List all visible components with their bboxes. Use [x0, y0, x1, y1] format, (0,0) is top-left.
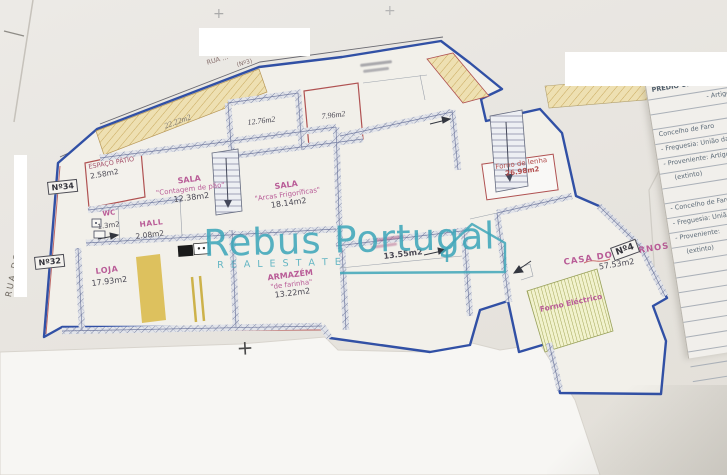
- watermark-brand: Rebus Portugal: [203, 214, 496, 265]
- photo-shadow: [547, 385, 727, 475]
- room-name: LOJA: [95, 264, 119, 276]
- redaction-patch-left: [14, 155, 27, 297]
- survey-cross: +: [384, 3, 396, 19]
- bottom-paper-sheet: [0, 337, 600, 475]
- room-label-wc: WC: [102, 208, 116, 218]
- redaction-patch-top: [199, 28, 310, 56]
- room-name: WC: [102, 208, 116, 218]
- scanned-floorplan-photo: ESPAÇO PÁTIO 2.58m2 SALA "Contagem de pã…: [0, 0, 727, 475]
- survey-cross: +: [236, 335, 254, 360]
- redaction-patch-topright: [565, 52, 727, 86]
- survey-cross: +: [213, 6, 225, 22]
